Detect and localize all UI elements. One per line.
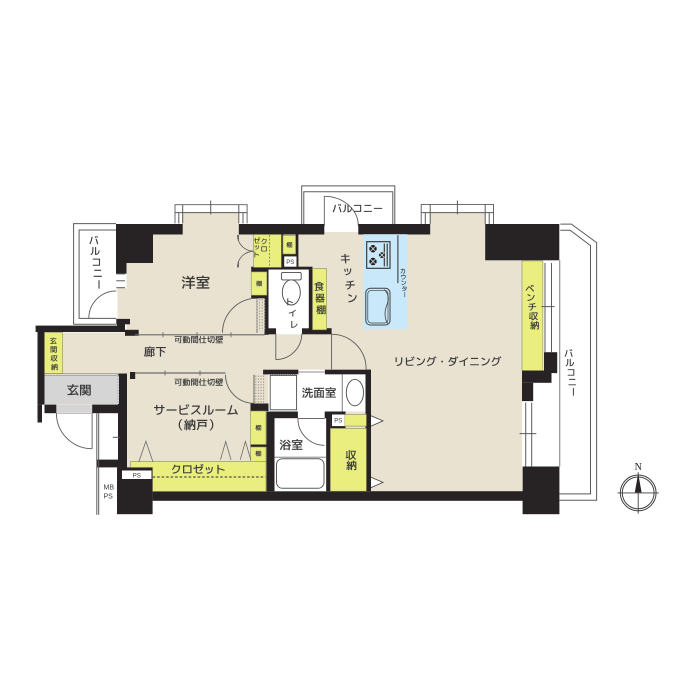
svg-text:N: N	[635, 462, 642, 473]
svg-text:PS: PS	[334, 419, 342, 425]
svg-text:PS: PS	[104, 494, 114, 501]
svg-text:MB: MB	[104, 485, 115, 492]
svg-text:PS: PS	[133, 472, 141, 479]
svg-text:PS: PS	[286, 260, 294, 266]
